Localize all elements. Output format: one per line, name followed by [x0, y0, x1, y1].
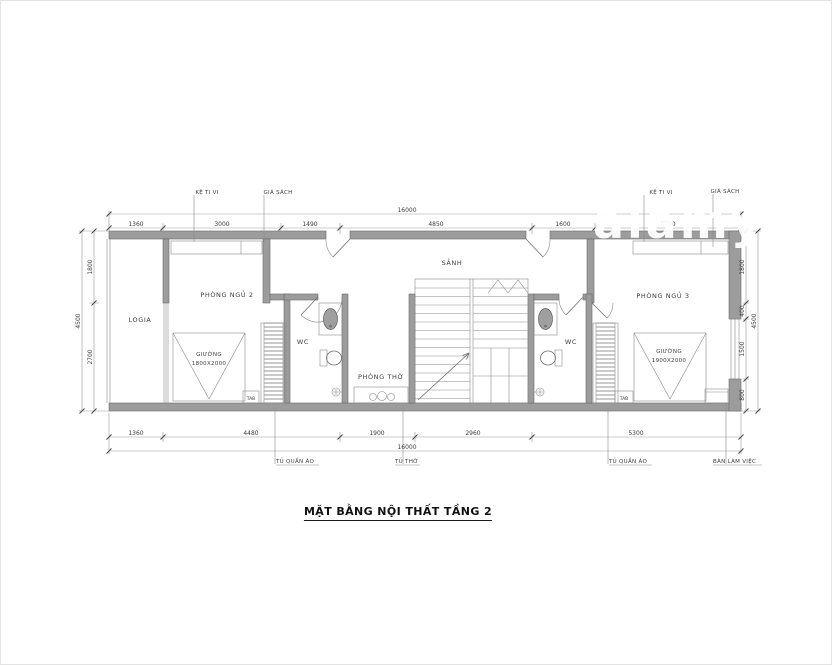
walls-layer	[109, 231, 741, 411]
label-tv-shelf-left: KỆ TI VI	[195, 188, 218, 196]
dim-top-1: 1360	[128, 221, 143, 228]
toilet-right	[541, 350, 563, 366]
dim-bottom-3: 1900	[369, 430, 384, 437]
dim-right-1: 1800	[739, 259, 746, 274]
dim-left-1: 1800	[87, 259, 94, 274]
room-label-wc-left: WC	[297, 338, 309, 346]
dim-top-total: 16000	[397, 207, 416, 214]
alamy-watermark: alamy	[593, 195, 764, 249]
toilet-left	[320, 350, 342, 366]
dim-bottom-1: 1360	[128, 430, 143, 437]
label-altar-cabinet: TỦ THỜ	[394, 457, 418, 465]
fixtures-layer	[319, 303, 562, 396]
label-bed-right-size: 1900X2000	[652, 358, 687, 364]
floor-plan-page: LOGIA PHÒNG NGỦ 2 SẢNH PHÒNG THỜ WC WC P…	[0, 0, 832, 665]
room-label-hall: SẢNH	[442, 258, 463, 267]
floor-plan-drawing: LOGIA PHÒNG NGỦ 2 SẢNH PHÒNG THỜ WC WC P…	[1, 1, 832, 665]
label-wardrobe-left: TỦ QUẦN ÁO	[275, 457, 314, 465]
dim-top-4: 4850	[428, 221, 443, 228]
room-label-bedroom2: PHÒNG NGỦ 2	[200, 289, 253, 299]
dim-right-total: 4500	[751, 313, 758, 328]
dim-bottom-2: 4480	[243, 430, 258, 437]
door-leaf-hall-left	[333, 239, 350, 257]
dim-right-2: 400	[739, 305, 746, 317]
wardrobe-left-outline	[261, 323, 286, 403]
dim-top-5: 1600	[555, 221, 570, 228]
shower-mixer-right	[534, 388, 544, 396]
drawing-title: MẶT BẰNG NỘI THẤT TẦNG 2	[304, 505, 492, 521]
windows-layer	[107, 239, 741, 403]
door-leaf-bedroom3	[592, 303, 607, 318]
room-label-bedroom3: PHÒNG NGỦ 3	[636, 290, 689, 300]
label-desk: BÀN LÀM VIỆC	[713, 457, 756, 465]
bed-left-outline	[173, 333, 245, 401]
label-tab-left: TAB	[246, 396, 256, 402]
desk-outline	[705, 389, 728, 403]
label-bed-left-size: 1800X2000	[192, 361, 227, 367]
dim-left-2: 2700	[87, 349, 94, 364]
dim-top-2: 3000	[214, 221, 229, 228]
label-tab-right: TAB	[619, 396, 629, 402]
basin-left	[319, 303, 342, 335]
dim-right-4: 800	[739, 389, 746, 401]
bed-right-outline	[634, 333, 706, 401]
dim-right-3: 1500	[739, 341, 746, 356]
dim-bottom-total: 16000	[397, 444, 416, 451]
label-bed-right-name: GIƯỜNG	[656, 348, 682, 355]
room-label-logia: LOGIA	[129, 316, 152, 324]
dim-top-3: 1490	[302, 221, 317, 228]
label-bed-left-name: GIƯỜNG	[196, 351, 222, 358]
tv-shelf-left-outline	[171, 241, 262, 254]
label-wardrobe-right: TỦ QUẦN ÁO	[608, 457, 647, 465]
door-leaf-hall-right	[526, 239, 543, 257]
dim-bottom-4: 2960	[465, 430, 480, 437]
label-bookshelf-left: GIÁ SÁCH	[263, 189, 292, 196]
room-label-worship: PHÒNG THỜ	[358, 372, 404, 381]
altar-cabinet-outline	[354, 387, 408, 403]
label-bookshelf-right: GIÁ SÁCH	[710, 188, 739, 195]
dim-left-total: 4500	[75, 313, 82, 328]
basin-right	[534, 303, 557, 335]
room-label-wc-right: WC	[565, 338, 577, 346]
dim-bottom-5: 5300	[628, 430, 643, 437]
stair-direction-arrow	[418, 353, 469, 400]
shower-mixer-left	[332, 388, 343, 396]
staircase	[415, 279, 528, 403]
door-leaf-wc-right	[566, 297, 583, 315]
wardrobe-right-outline	[593, 323, 618, 403]
